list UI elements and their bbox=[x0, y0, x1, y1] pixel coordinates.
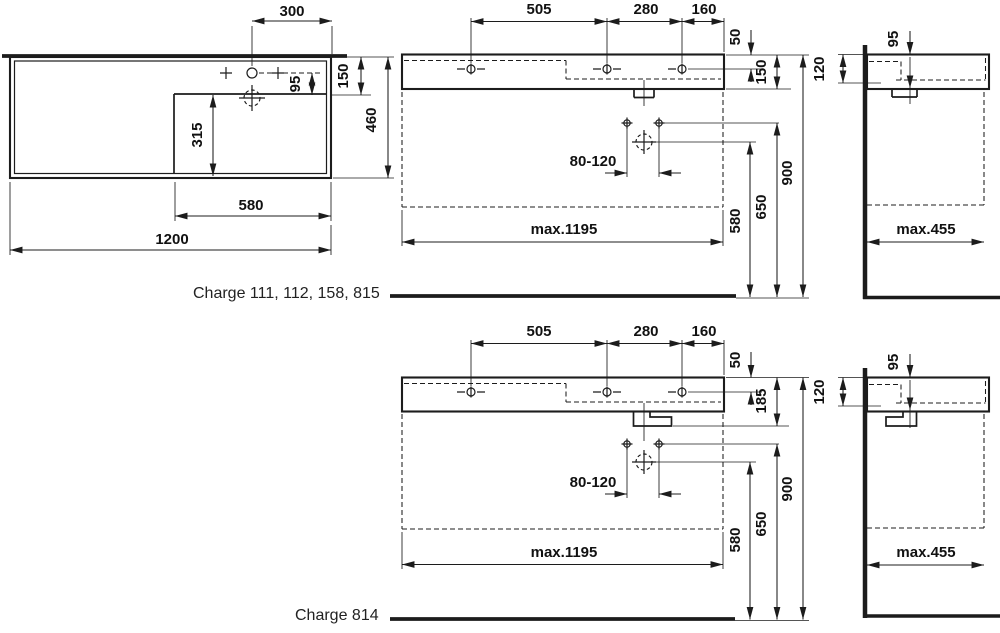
drain-elbow bbox=[634, 412, 672, 427]
dim-280-label: 280 bbox=[633, 323, 658, 340]
dim-580-label: 580 bbox=[727, 527, 744, 552]
front-view-bottom: 80-120 505 280 160 50 185 580 650 900 ma… bbox=[402, 323, 809, 621]
dim-1200-label: 1200 bbox=[155, 231, 188, 248]
dim-150-label: 150 bbox=[753, 59, 770, 84]
dim-650-label: 650 bbox=[753, 194, 770, 219]
top-dim-extensions bbox=[471, 18, 724, 63]
adjust-label: 80-120 bbox=[570, 153, 617, 170]
side-view-top: 95 120 max.455 bbox=[811, 31, 1000, 299]
variant-bottom-label: Charge 814 bbox=[295, 607, 379, 624]
max-depth-label: max.455 bbox=[896, 221, 955, 238]
dim-300-extensions bbox=[252, 26, 332, 66]
dim-50-label: 50 bbox=[727, 29, 744, 46]
dim-120-label: 120 bbox=[811, 56, 828, 81]
technical-drawing-page: 300 150 95 315 580 1200 460 bbox=[0, 0, 1000, 633]
variant-top-caption: Charge 111, 112, 158, 815 bbox=[193, 285, 736, 302]
tap-hole-icon bbox=[247, 68, 257, 78]
drain-cross bbox=[239, 85, 265, 111]
dim-900-label: 900 bbox=[779, 160, 796, 185]
washbasin-dimension-drawing: 300 150 95 315 580 1200 460 bbox=[0, 0, 1000, 633]
top-dim-extensions bbox=[471, 340, 724, 386]
adjust-extensions bbox=[627, 450, 659, 499]
dim-150-label: 150 bbox=[335, 63, 352, 88]
dim-650-label: 650 bbox=[753, 511, 770, 536]
max-width-label: max.1195 bbox=[531, 221, 598, 238]
alt-tap-hole-cross-icons bbox=[220, 67, 284, 79]
basin-side-outline bbox=[867, 55, 989, 90]
basin-side-hidden-edges bbox=[869, 381, 986, 403]
basin-outline bbox=[10, 57, 331, 178]
side-view-bottom: 95 120 max.455 bbox=[811, 354, 1000, 618]
front-view-top: 80-120 505 280 160 50 150 580 650 900 ma… bbox=[402, 1, 809, 298]
dim-280-label: 280 bbox=[633, 1, 658, 18]
variant-top-label: Charge 111, 112, 158, 815 bbox=[193, 285, 380, 302]
max-width-label: max.1195 bbox=[531, 544, 598, 561]
furniture-zone-dashed bbox=[402, 92, 723, 207]
variant-bottom-caption: Charge 814 bbox=[295, 607, 735, 624]
waste-outlet-cross bbox=[632, 130, 656, 154]
drain-tailpiece bbox=[892, 89, 917, 97]
basin-side-hidden-edges bbox=[869, 58, 986, 80]
adjust-extensions bbox=[627, 129, 659, 178]
dim-50-label: 50 bbox=[727, 352, 744, 369]
dim-505-label: 505 bbox=[526, 1, 551, 18]
dim-160-label: 160 bbox=[691, 1, 716, 18]
dim-580-label: 580 bbox=[727, 208, 744, 233]
dim-460-label: 460 bbox=[363, 107, 380, 132]
dim-505-label: 505 bbox=[526, 323, 551, 340]
fixing-screw-icons bbox=[622, 439, 665, 450]
basin-front-outline bbox=[402, 378, 724, 412]
adjust-label: 80-120 bbox=[570, 474, 617, 491]
furniture-zone-dashed bbox=[867, 414, 984, 528]
dim-120-label: 120 bbox=[811, 379, 828, 404]
waste-outlet-cross bbox=[632, 450, 656, 474]
basin-hidden-edges bbox=[404, 61, 721, 80]
furniture-zone-dashed bbox=[867, 92, 984, 205]
basin-hidden-edges bbox=[404, 384, 721, 403]
dim-300-label: 300 bbox=[279, 3, 304, 20]
dim-160-label: 160 bbox=[691, 323, 716, 340]
dim-95-label: 95 bbox=[287, 76, 304, 93]
dim-120-extensions bbox=[838, 55, 881, 84]
dim-95-label: 95 bbox=[885, 31, 902, 48]
dim-95-label: 95 bbox=[885, 354, 902, 371]
plan-view: 300 150 95 315 580 1200 460 bbox=[2, 3, 394, 255]
max-depth-label: max.455 bbox=[896, 544, 955, 561]
drain-elbow bbox=[886, 412, 917, 427]
tap-hole-icons bbox=[457, 64, 686, 75]
tap-hole-icons bbox=[457, 387, 686, 398]
dim-315-label: 315 bbox=[189, 122, 206, 147]
basin-rim-inner bbox=[15, 61, 327, 174]
furniture-zone-dashed bbox=[402, 414, 723, 529]
dim-900-label: 900 bbox=[779, 476, 796, 501]
basin-front-outline bbox=[402, 55, 724, 90]
dim-185-label: 185 bbox=[753, 388, 770, 413]
fixing-screw-icons bbox=[622, 118, 665, 129]
basin-side-outline bbox=[867, 378, 989, 412]
dim-120-extensions bbox=[838, 378, 881, 407]
dim-580-label: 580 bbox=[238, 197, 263, 214]
